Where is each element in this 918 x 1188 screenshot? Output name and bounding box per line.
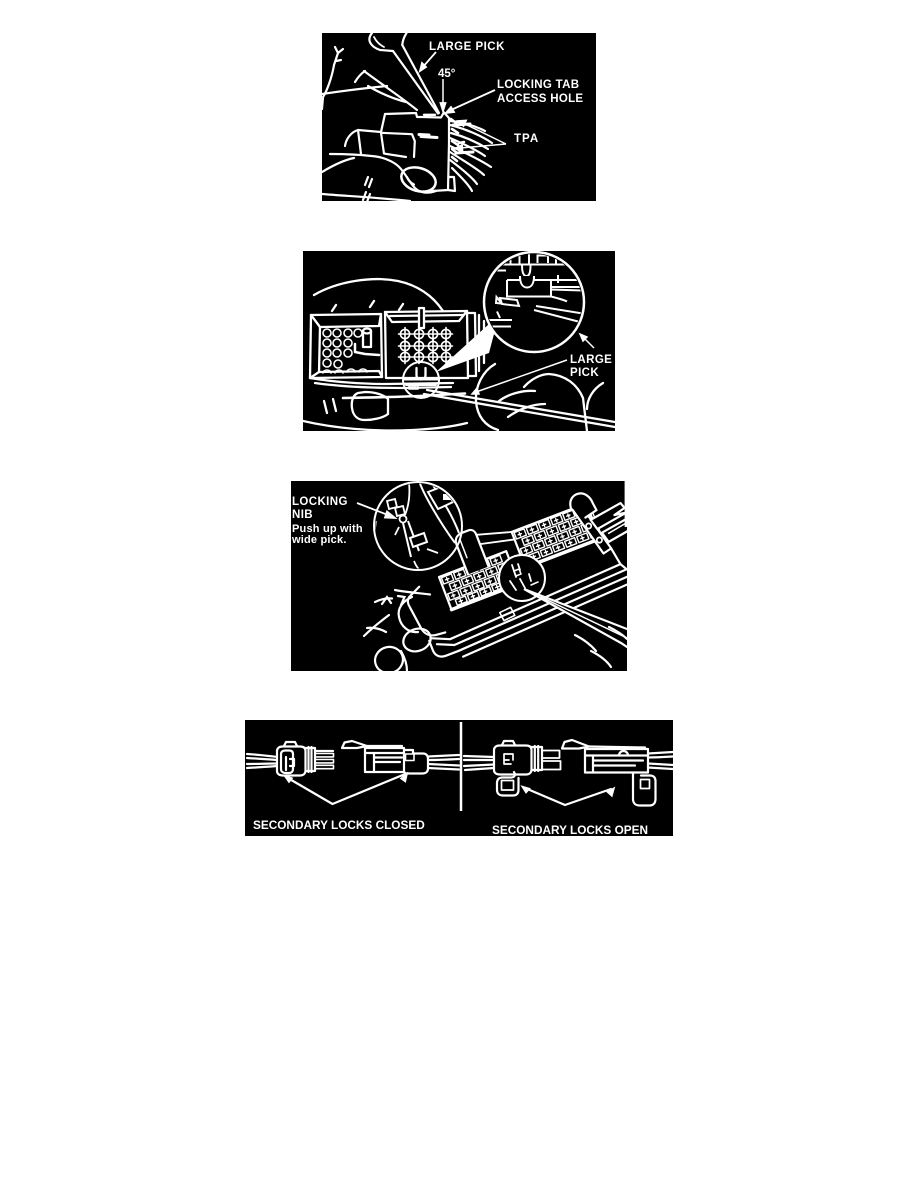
svg-text:LOCKING: LOCKING <box>292 496 348 508</box>
svg-text:45°: 45° <box>438 68 456 80</box>
svg-text:PICK: PICK <box>570 367 599 379</box>
svg-text:SECONDARY LOCKS OPEN: SECONDARY LOCKS OPEN <box>492 823 648 836</box>
svg-text:LOCKING TAB: LOCKING TAB <box>497 79 579 91</box>
svg-text:LARGE: LARGE <box>570 354 612 366</box>
svg-text:LARGE PICK: LARGE PICK <box>429 41 505 53</box>
svg-text:wide pick.: wide pick. <box>291 534 347 546</box>
svg-text:ACCESS HOLE: ACCESS HOLE <box>497 93 583 105</box>
svg-text:NIB: NIB <box>292 509 313 521</box>
svg-text:SECONDARY LOCKS CLOSED: SECONDARY LOCKS CLOSED <box>253 818 425 832</box>
svg-text:TPA: TPA <box>514 133 539 145</box>
